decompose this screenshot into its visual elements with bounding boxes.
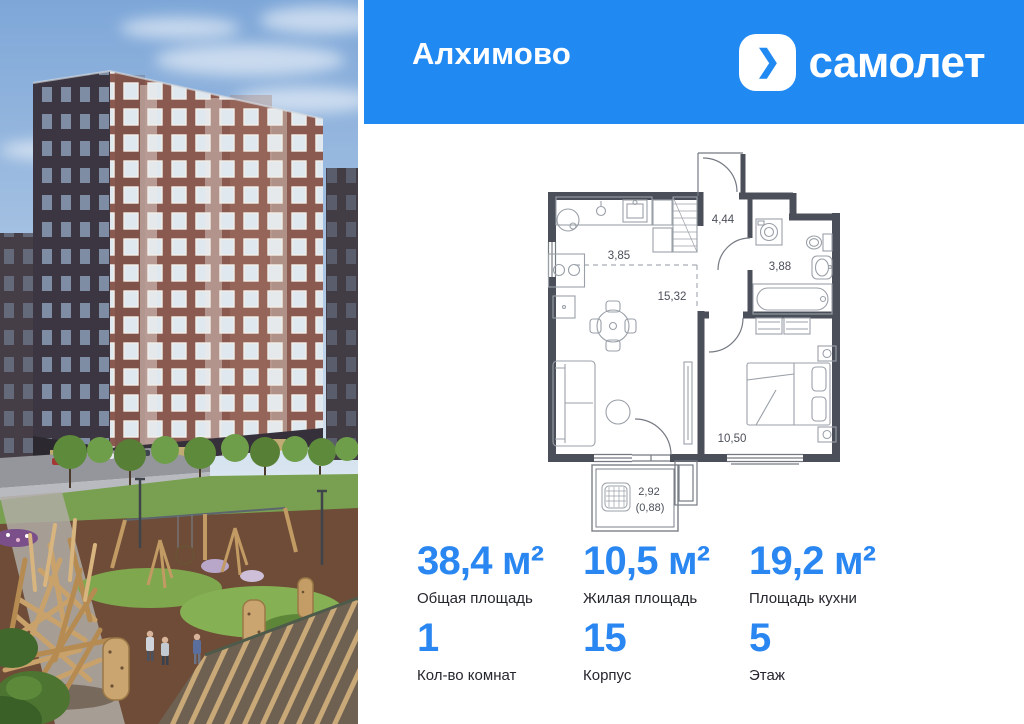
sofa <box>553 361 595 446</box>
coffee-table <box>606 400 630 424</box>
bathroom-sink <box>812 256 832 279</box>
header-banner: Алхимово ❯ самолет <box>364 0 1024 124</box>
walls <box>548 154 840 462</box>
hallway-area-label: 4,44 <box>712 214 735 226</box>
project-title: Алхимово <box>412 36 571 72</box>
samolet-logo: ❯ самолет <box>739 34 985 91</box>
floor-plan: 3,85 4,44 3,88 15,32 10,50 2,92 (0,88) <box>546 150 846 535</box>
apartment-listing-card[interactable]: Алхимово ❯ самолет <box>0 0 1024 724</box>
building-photo <box>0 0 358 724</box>
stat-rooms: 1 Кол-во комнат <box>417 618 583 685</box>
stat-value: 15 <box>583 618 749 658</box>
kitchen-counter <box>556 197 652 231</box>
stat-floor: 5 Этаж <box>749 618 915 685</box>
stat-label: Общая площадь <box>417 590 583 608</box>
building-photo-illustration <box>0 0 358 724</box>
toilet <box>807 234 833 251</box>
main-building <box>33 71 323 474</box>
stat-label: Кол-во комнат <box>417 667 583 685</box>
brand-name: самолет <box>808 38 985 88</box>
zone-dashed-line <box>575 265 697 310</box>
stat-value: 1 <box>417 618 583 658</box>
bedroom-area-label: 10,50 <box>718 433 747 445</box>
stat-living-area: 10,5 м² Жилая площадь <box>583 541 749 608</box>
stat-label: Жилая площадь <box>583 590 749 608</box>
washing-machine <box>756 219 782 245</box>
living-area-label: 15,32 <box>658 291 687 303</box>
stat-value: 38,4 м² <box>417 541 583 581</box>
tv-stand <box>684 362 692 444</box>
samolet-logo-icon: ❯ <box>739 34 796 91</box>
furniture <box>549 197 837 446</box>
balcony-area-label: 2,92 <box>638 486 659 498</box>
dining-table <box>590 301 636 351</box>
ac-unit <box>602 483 630 511</box>
stats-row-areas: 38,4 м² Общая площадь 10,5 м² Жилая площ… <box>417 541 915 608</box>
stat-label: Этаж <box>749 667 915 685</box>
stat-label: Корпус <box>583 667 749 685</box>
stat-value: 10,5 м² <box>583 541 749 581</box>
chevron-right-icon: ❯ <box>755 47 780 77</box>
stats-row-details: 1 Кол-во комнат 15 Корпус 5 Этаж <box>417 618 915 685</box>
kitchen-area-label: 3,85 <box>608 250 630 262</box>
stat-total-area: 38,4 м² Общая площадь <box>417 541 583 608</box>
stat-label: Площадь кухни <box>749 590 915 608</box>
hall-closet <box>653 197 697 252</box>
stat-value: 19,2 м² <box>749 541 915 581</box>
stat-kitchen-area: 19,2 м² Площадь кухни <box>749 541 915 608</box>
dishwasher <box>553 296 575 318</box>
bathtub <box>753 284 832 314</box>
stat-value: 5 <box>749 618 915 658</box>
balcony-coef-label: (0,88) <box>636 502 665 514</box>
floor-plan-drawing: 3,85 4,44 3,88 15,32 10,50 2,92 (0,88) <box>546 150 846 535</box>
bed <box>747 363 830 425</box>
dresser <box>756 318 810 334</box>
stat-building: 15 Корпус <box>583 618 749 685</box>
bathroom-area-label: 3,88 <box>769 261 791 273</box>
